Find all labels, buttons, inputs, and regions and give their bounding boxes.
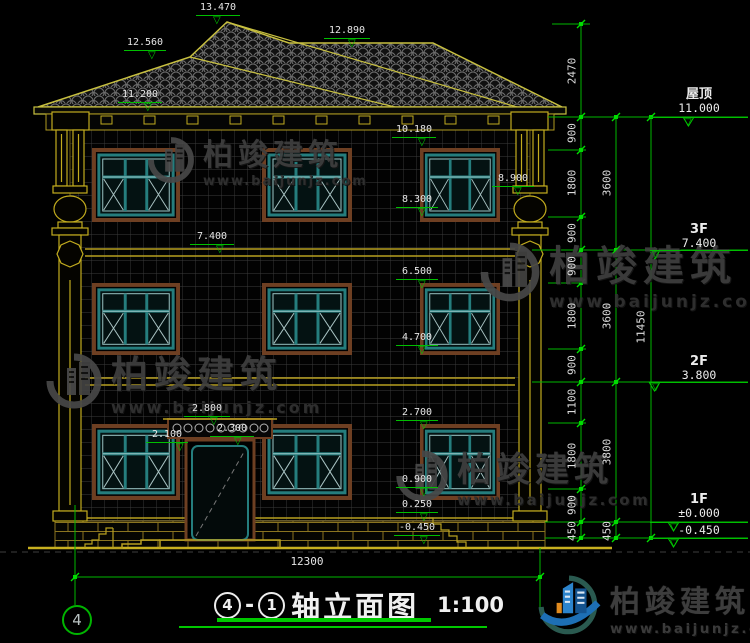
level-triangle-icon: ▽	[420, 421, 428, 431]
elev-marker-roof-peak: 13.470▽	[196, 1, 240, 16]
level-value: 7.400	[650, 237, 748, 250]
level-roof: 屋顶 11.000 ▽	[650, 87, 748, 118]
dim-text-bottom-overall: 12300	[283, 555, 331, 568]
level-value: ±0.000	[650, 507, 748, 520]
elev-value: 12.890	[324, 24, 370, 37]
title-scale: 1:100	[437, 593, 504, 617]
level-triangle-icon: ▽	[418, 346, 426, 356]
level-triangle-icon: ▽	[652, 383, 660, 393]
company-logo-icon	[536, 574, 602, 640]
elev-marker-plinth-top: 0.250▽	[396, 498, 438, 513]
elev-marker-f3-floor: 7.400▽	[190, 230, 234, 245]
elev-marker-roof-hip: 12.560▽	[124, 36, 166, 51]
level-triangle-icon: ▽	[514, 187, 522, 197]
level-triangle-icon: ▽	[418, 138, 426, 148]
elev-marker-door-top: 2.100▽	[146, 428, 188, 443]
elev-marker-column-capital: 8.900▽	[492, 172, 534, 187]
elev-value: 11.200	[118, 88, 162, 101]
level-label: 1F	[650, 492, 748, 507]
level-triangle-icon: ▽	[148, 51, 156, 61]
level-triangle-icon: ▽	[216, 245, 224, 255]
dim-text: 900	[566, 355, 579, 375]
elev-value: 0.250	[396, 498, 438, 511]
level-triangle-icon: ▽	[418, 280, 426, 290]
level-triangle-icon: ▽	[176, 443, 184, 453]
company-logo-brand: 柏竣建筑	[610, 577, 750, 621]
level-triangle-icon: ▽	[684, 118, 692, 128]
dim-text: 1800	[566, 170, 579, 197]
level-triangle-icon: ▽	[144, 103, 152, 113]
elev-value: 6.500	[396, 265, 438, 278]
level-triangle-icon: ▽	[418, 208, 426, 218]
level-value: -0.450	[650, 524, 748, 537]
elev-marker-f1-window-top: 2.700▽	[396, 406, 438, 421]
level-symbols	[649, 117, 694, 547]
dim-text: 2470	[566, 58, 579, 85]
title-underline	[217, 618, 431, 622]
level-label: 2F	[650, 354, 748, 369]
level-label: 3F	[650, 222, 748, 237]
dim-text: 1800	[566, 443, 579, 470]
dim-text: 900	[566, 256, 579, 276]
elev-value: 2.100	[146, 428, 188, 441]
dim-text-overall: 11450	[635, 310, 648, 343]
elev-value: -0.450	[394, 521, 440, 534]
elev-marker-f1-window-sill: 0.900▽	[396, 473, 438, 488]
title-separator: -	[245, 593, 254, 618]
level-triangle-icon: ▽	[652, 251, 660, 261]
cornice	[46, 114, 554, 130]
elev-value: 8.900	[492, 172, 534, 185]
level-triangle-icon: ▽	[670, 539, 678, 549]
dim-text: 3800	[601, 439, 614, 466]
level-value: 11.000	[650, 102, 748, 115]
roof	[34, 22, 566, 114]
dim-text: 1100	[566, 389, 579, 416]
dim-text: 900	[566, 495, 579, 515]
elev-marker-canopy-bottom: 2.300▽	[210, 422, 254, 437]
elev-value: 13.470	[196, 1, 240, 14]
company-logo-url: www.baijunjz.com	[610, 621, 750, 637]
level-value: 3.800	[650, 369, 748, 382]
elev-value: 12.560	[124, 36, 166, 49]
level-triangle-icon: ▽	[234, 437, 242, 447]
elev-marker-f3-window-top: 10.180▽	[392, 123, 436, 138]
elev-marker-roof-ridge: 12.890▽	[324, 24, 370, 39]
elev-value: 7.400	[190, 230, 234, 243]
elev-marker-f2-window-top: 6.500▽	[396, 265, 438, 280]
axis-bubble: 4	[62, 605, 92, 635]
level-triangle-icon: ▽	[213, 16, 221, 26]
elev-value: 2.700	[396, 406, 438, 419]
title-axis-from: 4	[214, 592, 241, 619]
dim-text: 1800	[566, 303, 579, 330]
elev-value: 10.180	[392, 123, 436, 136]
dim-text: 3600	[601, 170, 614, 197]
level-triangle-icon: ▽	[420, 488, 428, 498]
level-2f: 2F 3.800 ▽	[650, 354, 748, 383]
dim-text: 900	[566, 223, 579, 243]
elev-value: 2.300	[210, 422, 254, 435]
level-triangle-icon: ▽	[420, 536, 428, 546]
elev-value: 0.900	[396, 473, 438, 486]
dim-text: 3600	[601, 303, 614, 330]
elev-value: 4.700	[396, 331, 438, 344]
dim-text: 450	[601, 521, 614, 541]
elev-marker-outdoor-ground: -0.450▽	[394, 521, 440, 536]
level-label: 屋顶	[650, 87, 748, 102]
elev-marker-f2-window-sill: 4.700▽	[396, 331, 438, 346]
company-logo: 柏竣建筑 www.baijunjz.com	[536, 574, 750, 640]
cad-canvas: 柏竣建筑 www.baijunjz.com 柏竣建筑 www.baijunjz.…	[0, 0, 750, 643]
level-3f: 3F 7.400 ▽	[650, 222, 748, 251]
elev-marker-canopy-top: 2.800▽	[184, 402, 230, 417]
dim-text: 450	[566, 521, 579, 541]
elev-value: 8.300	[396, 193, 438, 206]
elev-marker-f3-window-sill: 8.300▽	[396, 193, 438, 208]
dim-text: 900	[566, 123, 579, 143]
level-1f: 1F ±0.000 ▽	[650, 492, 748, 523]
title-underline-thin	[179, 626, 487, 628]
title-axis-to: 1	[258, 592, 285, 619]
level-triangle-icon: ▽	[348, 39, 356, 49]
elev-marker-eave: 11.200▽	[118, 88, 162, 103]
elev-value: 2.800	[184, 402, 230, 415]
level-outdoor: -0.450 ▽	[650, 524, 748, 539]
